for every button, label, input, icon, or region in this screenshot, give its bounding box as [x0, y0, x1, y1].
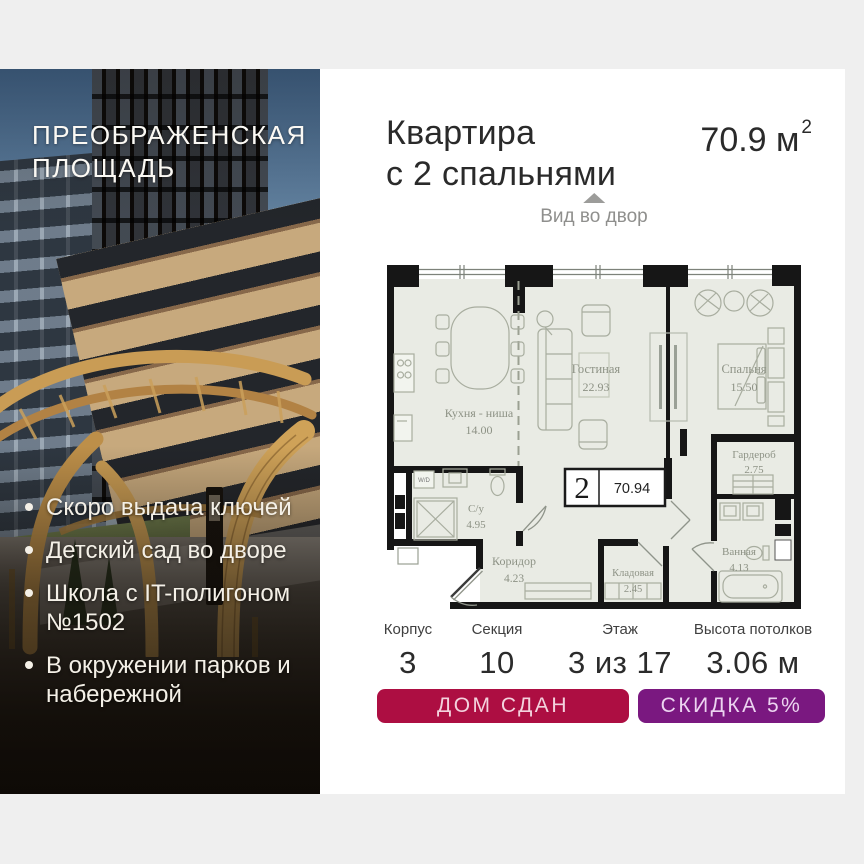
- project-feature-list: Скоро выдача ключей Детский сад во дворе…: [22, 493, 300, 723]
- room-area-su: 4.95: [466, 519, 486, 531]
- apartment-title-line1: Квартира: [386, 113, 616, 154]
- project-name: ПРЕОБРАЖЕНСКАЯ ПЛОЩАДЬ: [32, 119, 307, 185]
- stat-building: Корпус 3: [360, 621, 456, 681]
- room-label-bath: Ванная: [722, 546, 756, 558]
- house-delivered-button[interactable]: ДОМ СДАН: [377, 689, 629, 723]
- room-label-corridor: Коридор: [492, 554, 536, 568]
- feature-item: В окружении парков и набережной: [22, 651, 300, 709]
- room-label-living: Гостиная: [572, 362, 621, 376]
- project-name-line1: ПРЕОБРАЖЕНСКАЯ: [32, 119, 307, 152]
- badge-rooms: 2: [574, 470, 590, 505]
- room-area-bedroom: 15.50: [731, 380, 758, 394]
- stove: [394, 354, 414, 392]
- room-label-kitchen: Кухня - ниша: [445, 406, 514, 420]
- room-area-corridor: 4.23: [504, 573, 524, 585]
- floorplan: Кухня - ниша 14.00 Гостиная 22.93 Спальн…: [387, 265, 801, 609]
- room-label-su: С/у: [468, 503, 484, 515]
- apartment-title-line2: с 2 спальнями: [386, 154, 616, 195]
- listing-page: { "project": { "name_line1": "ПРЕОБРАЖЕН…: [0, 0, 864, 864]
- project-photo: ПРЕОБРАЖЕНСКАЯ ПЛОЩАДЬ Скоро выдача ключ…: [0, 69, 320, 794]
- discount-button[interactable]: СКИДКА 5%: [638, 689, 825, 723]
- listing-card: ПРЕОБРАЖЕНСКАЯ ПЛОЩАДЬ Скоро выдача ключ…: [0, 69, 845, 794]
- feature-item: Скоро выдача ключей: [22, 493, 300, 522]
- area-sup: 2: [801, 117, 812, 138]
- stat-section: Секция 10: [449, 621, 545, 681]
- stat-value: 3.06 м: [670, 645, 836, 681]
- stat-label: Корпус: [360, 621, 456, 638]
- feature-item: Детский сад во дворе: [22, 536, 300, 565]
- view-direction-label: Вид во двор: [540, 206, 647, 228]
- project-name-line2: ПЛОЩАДЬ: [32, 152, 307, 185]
- badge-area: 70.94: [614, 481, 650, 497]
- stat-label: Высота потолков: [670, 621, 836, 638]
- room-area-living: 22.93: [583, 380, 610, 394]
- view-direction-arrow-icon: [583, 193, 605, 203]
- room-area-storage: 2.45: [624, 584, 642, 595]
- room-label-wardrobe: Гардероб: [732, 449, 776, 461]
- washer-label: W/D: [418, 478, 430, 484]
- stat-value: 3: [360, 645, 456, 681]
- room-label-storage: Кладовая: [612, 568, 654, 579]
- room-label-bedroom: Спальня: [721, 362, 766, 376]
- room-area-kitchen: 14.00: [466, 423, 493, 437]
- stat-label: Секция: [449, 621, 545, 638]
- view-direction: Вид во двор: [540, 193, 647, 228]
- apartment-area: 70.9 м2: [700, 117, 812, 160]
- feature-item: Школа с IT-полигоном №1502: [22, 579, 300, 637]
- kitchen-sink: [394, 415, 412, 441]
- area-value: 70.9: [700, 121, 766, 159]
- windows: [419, 265, 772, 279]
- stat-value: 10: [449, 645, 545, 681]
- area-unit: м: [776, 121, 799, 159]
- apartment-info: Квартира с 2 спальнями 70.9 м2 Вид во дв…: [320, 69, 845, 794]
- stat-ceiling-height: Высота потолков 3.06 м: [670, 621, 836, 681]
- apartment-title: Квартира с 2 спальнями: [386, 113, 616, 195]
- plan-badge: 2 70.94: [565, 469, 665, 506]
- room-area-wardrobe: 2.75: [744, 464, 764, 476]
- room-area-bath: 4.13: [729, 562, 749, 574]
